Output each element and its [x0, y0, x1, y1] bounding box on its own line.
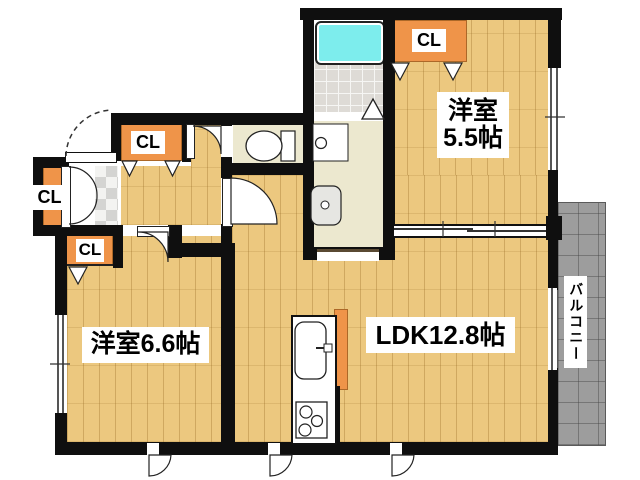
washroom-floor: [314, 120, 383, 247]
window-line: [62, 315, 64, 413]
wall: [221, 224, 232, 249]
casement-window-swing: [392, 455, 414, 476]
hall-closet-label: CL: [131, 131, 165, 154]
bathroom-floor: [314, 62, 383, 118]
toilet-door-leaf: [186, 124, 195, 159]
entry-closet-label: CL: [33, 185, 66, 210]
toilet-room-floor: [233, 125, 303, 163]
window-line: [551, 288, 553, 370]
sliding-partition-line: [394, 228, 473, 230]
entrance-tile-floor: [95, 166, 119, 225]
casement-window-gap: [390, 443, 402, 455]
bedroom-upper-size: 5.5帖: [443, 125, 503, 153]
wall: [221, 113, 232, 126]
bedroom-lower-closet-edge: [65, 264, 113, 266]
ldk-label: LDK12.8帖: [366, 317, 515, 353]
bedroom-lower-door-leaf: [137, 226, 170, 237]
bedroom-upper-name: 洋室: [448, 98, 498, 126]
wall: [300, 8, 562, 20]
casement-window-swing: [149, 455, 171, 476]
bedroom-lower-label: 洋室6.6帖: [82, 327, 209, 363]
window-line: [550, 68, 552, 170]
washroom-sliding-door: [317, 249, 379, 261]
bathroom-door-track: [314, 112, 383, 121]
bathtub: [315, 21, 385, 65]
bedroom-upper-label: 洋室 5.5帖: [437, 92, 509, 158]
wall: [113, 225, 123, 268]
hall-nook-floor: [191, 123, 221, 168]
hall-ldk-door-leaf: [222, 178, 233, 227]
floorplan-canvas: 洋室 5.5帖 洋室6.6帖 LDK12.8帖 バルコニー CL CL CL C…: [0, 0, 640, 480]
bedroom-lower-closet-label: CL: [76, 239, 104, 262]
kitchen-unit: [291, 315, 337, 445]
wall: [303, 8, 314, 260]
closet-door-swing: [69, 195, 97, 224]
entrance-door-swing: [66, 110, 112, 156]
casement-window-swing: [270, 455, 292, 476]
wall: [548, 8, 561, 70]
window-line: [556, 68, 558, 170]
wall: [383, 8, 395, 260]
entrance-step: [118, 166, 121, 225]
wall: [546, 216, 562, 240]
casement-window-gap: [147, 443, 159, 455]
entrance-door-leaf: [65, 152, 117, 163]
sliding-partition-line: [467, 230, 546, 232]
casement-window-gap: [268, 443, 280, 455]
window-line: [57, 315, 59, 413]
wall: [222, 163, 303, 175]
closet-door-swing: [69, 167, 97, 195]
bedroom-upper-closet-label: CL: [412, 29, 446, 52]
balcony-label: バルコニー: [564, 276, 587, 368]
wall: [221, 243, 235, 455]
wall: [111, 113, 304, 125]
